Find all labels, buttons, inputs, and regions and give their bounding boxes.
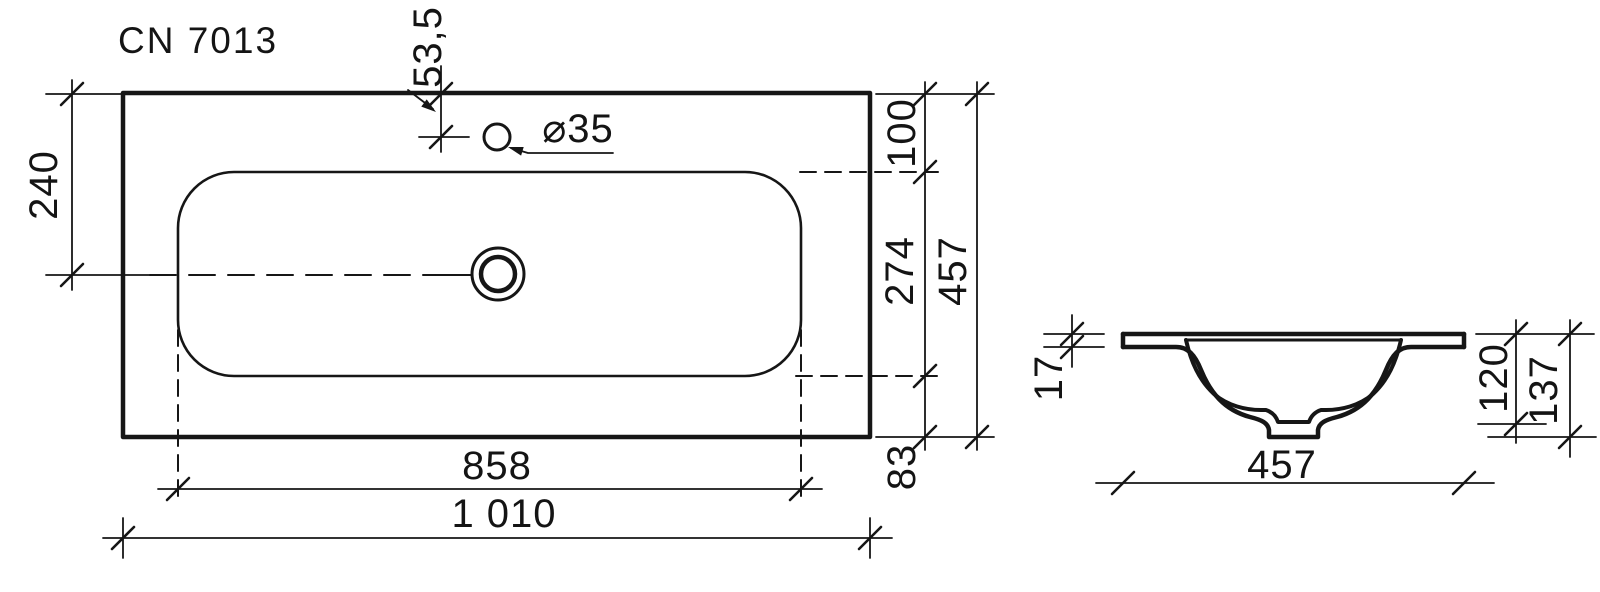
dim-text-457-right: 457 — [933, 236, 973, 306]
dim-text-17: 17 — [1029, 355, 1069, 402]
dim-text-53-5: 53,5 — [408, 6, 448, 88]
dim-text-274: 274 — [880, 236, 920, 306]
drawing-canvas: CN 7013 240 53,5 ⌀35 100 274 457 83 858 … — [0, 0, 1600, 592]
model-number-label: CN 7013 — [118, 22, 278, 59]
drain-inner-circle — [481, 257, 515, 291]
dim-text-120: 120 — [1474, 343, 1514, 413]
dim-text-858: 858 — [462, 446, 532, 486]
dim-text-457-section: 457 — [1247, 445, 1317, 485]
dim-text-hole-diameter: ⌀35 — [542, 109, 614, 149]
dim-text-83: 83 — [882, 444, 922, 491]
section-inner-wall — [1186, 340, 1401, 422]
faucet-hole — [484, 124, 510, 150]
dim-text-100: 100 — [882, 98, 922, 168]
arrowhead-hole — [508, 147, 524, 156]
dim-text-240: 240 — [24, 150, 64, 220]
top-view-outer-edge — [123, 93, 870, 437]
dim-text-1010: 1 010 — [451, 494, 556, 534]
dim-text-137: 137 — [1524, 355, 1564, 425]
drawing-linework — [0, 0, 1600, 592]
